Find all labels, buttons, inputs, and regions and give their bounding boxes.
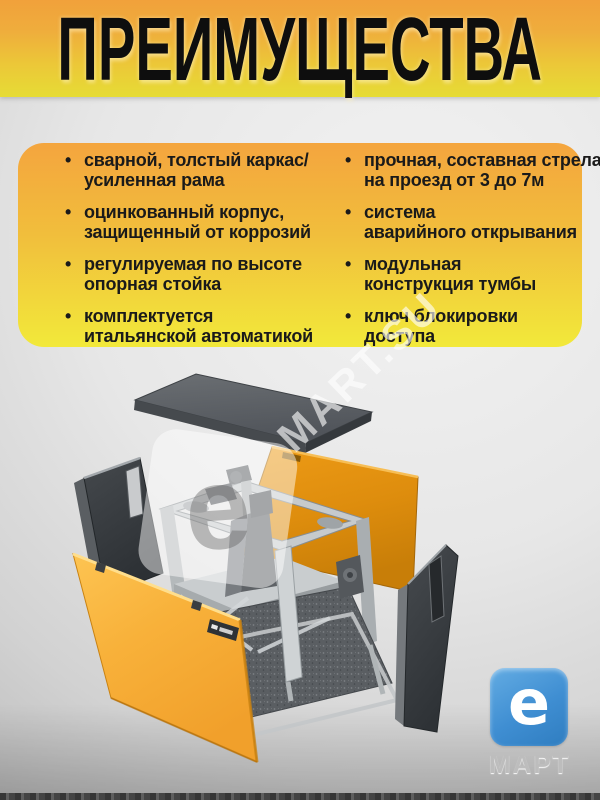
advantage-item: модульная конструкция тумбы: [344, 254, 588, 294]
brand-logo: e МАРТ: [489, 668, 569, 780]
advantage-item: оцинкованный корпус, защищенный от корро…: [64, 202, 324, 242]
top-lid-panel: [134, 374, 372, 453]
advantages-card: сварной, толстый каркас/ усиленная рама …: [18, 143, 582, 347]
advantage-item: ключ блокировки доступа: [344, 306, 588, 346]
brand-label: МАРТ: [489, 749, 569, 780]
page-title: ПРЕИМУЩЕСТВА: [58, 3, 543, 95]
advantage-item: прочная, составная стрела на проезд от 3…: [344, 150, 588, 190]
advantages-column-right: прочная, составная стрела на проезд от 3…: [344, 150, 588, 358]
brand-e-glyph: e: [508, 672, 550, 734]
advantage-item: система аварийного открывания: [344, 202, 588, 242]
advantages-column-left: сварной, толстый каркас/ усиленная рама …: [64, 150, 324, 358]
advantage-item: комплектуется итальянской автоматикой: [64, 306, 324, 346]
advantage-item: сварной, толстый каркас/ усиленная рама: [64, 150, 324, 190]
advantage-item: регулируемая по высоте опорная стойка: [64, 254, 324, 294]
header-band: ПРЕИМУЩЕСТВА: [0, 0, 600, 97]
ground-strip: [0, 793, 600, 800]
brand-e-logo-icon: e: [490, 668, 568, 746]
